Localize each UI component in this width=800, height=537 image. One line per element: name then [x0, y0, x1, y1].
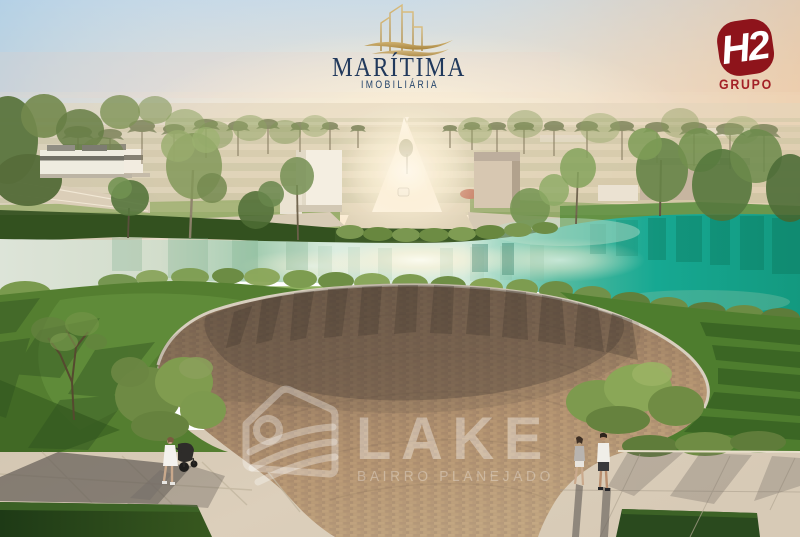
- svg-text:H2: H2: [718, 23, 773, 73]
- svg-text:LAKE: LAKE: [356, 405, 552, 472]
- svg-text:GRUPO: GRUPO: [719, 76, 773, 92]
- svg-text:IMOBILIÁRIA: IMOBILIÁRIA: [361, 78, 439, 91]
- svg-text:BAIRRO PLANEJADO: BAIRRO PLANEJADO: [357, 468, 554, 485]
- svg-text:MARÍTIMA: MARÍTIMA: [332, 52, 466, 82]
